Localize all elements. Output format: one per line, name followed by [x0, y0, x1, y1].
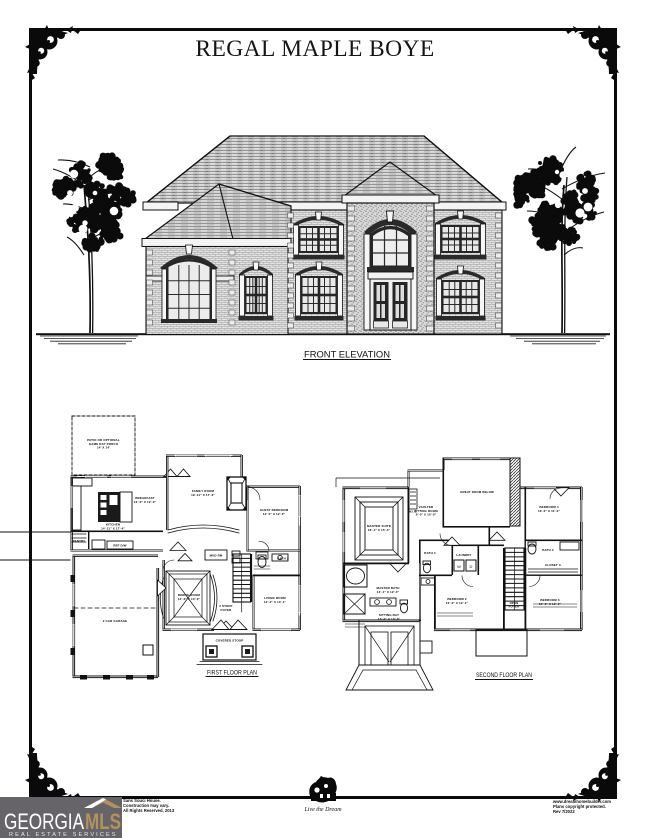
svg-text:12’-0" X 13’-0": 12’-0" X 13’-0": [178, 597, 201, 601]
svg-text:W: W: [457, 564, 461, 569]
svg-text:GEORGIA: GEORGIA: [4, 809, 84, 834]
svg-text:19’-11" X 17’-2": 19’-11" X 17’-2": [191, 493, 215, 497]
svg-text:12’-0" X 12’-1": 12’-0" X 12’-1": [446, 601, 469, 605]
svg-text:PANTRY: PANTRY: [73, 539, 86, 543]
svg-text:Rev 7/2022: Rev 7/2022: [553, 809, 575, 814]
svg-text:LAUNDRY: LAUNDRY: [456, 553, 471, 557]
svg-text:REAL ESTATE SERVICES: REAL ESTATE SERVICES: [9, 832, 118, 838]
svg-text:12’-0" X 13’-1": 12’-0" X 13’-1": [264, 600, 287, 604]
svg-text:16’-1" X 15’-4": 16’-1" X 15’-4": [368, 528, 391, 532]
svg-text:MLS: MLS: [85, 809, 121, 834]
svg-text:FRONT ELEVATION: FRONT ELEVATION: [304, 350, 390, 360]
svg-text:13’-0" X 10’-0": 13’-0" X 10’-0": [378, 617, 401, 621]
svg-text:FOYER: FOYER: [509, 605, 521, 609]
svg-text:2 CAR GARAGE: 2 CAR GARAGE: [103, 619, 128, 623]
svg-text:REF D/W: REF D/W: [113, 544, 126, 548]
svg-text:14’-11" X 17’-4": 14’-11" X 17’-4": [101, 526, 125, 530]
svg-text:REGAL MAPLE BOYE: REGAL MAPLE BOYE: [195, 36, 434, 62]
svg-text:14’-1" X 12’-4": 14’-1" X 12’-4": [377, 590, 400, 594]
svg-text:Live the Dream: Live the Dream: [303, 807, 342, 813]
svg-text:W.I.C.: W.I.C.: [409, 510, 418, 514]
svg-text:9’-0" X 10’-0": 9’-0" X 10’-0": [416, 513, 437, 517]
svg-text:GREAT ROOM BELOW: GREAT ROOM BELOW: [460, 490, 494, 494]
svg-text:CLOSET A: CLOSET A: [545, 563, 562, 567]
svg-text:BATH 4: BATH 4: [424, 551, 436, 555]
svg-text:16’-0" X 11’-0": 16’-0" X 11’-0": [538, 509, 561, 513]
svg-text:12’-0" X 12’-0": 12’-0" X 12’-0": [134, 500, 157, 504]
svg-text:FOYER: FOYER: [221, 608, 233, 612]
svg-text:All Rights Reserved, 2013: All Rights Reserved, 2013: [123, 808, 175, 813]
svg-text:D: D: [470, 564, 473, 569]
svg-text:12’-0" X 12’-0": 12’-0" X 12’-0": [263, 512, 286, 516]
svg-text:BATH 3: BATH 3: [542, 548, 553, 552]
svg-text:FIRST FLOOR PLAN: FIRST FLOOR PLAN: [207, 670, 257, 677]
svg-text:COVERED STOOP: COVERED STOOP: [216, 639, 244, 643]
svg-text:14' X 14': 14' X 14': [97, 446, 110, 450]
svg-text:SECOND FLOOR PLAN: SECOND FLOOR PLAN: [476, 672, 532, 679]
svg-text:MUD RM: MUD RM: [210, 554, 223, 558]
